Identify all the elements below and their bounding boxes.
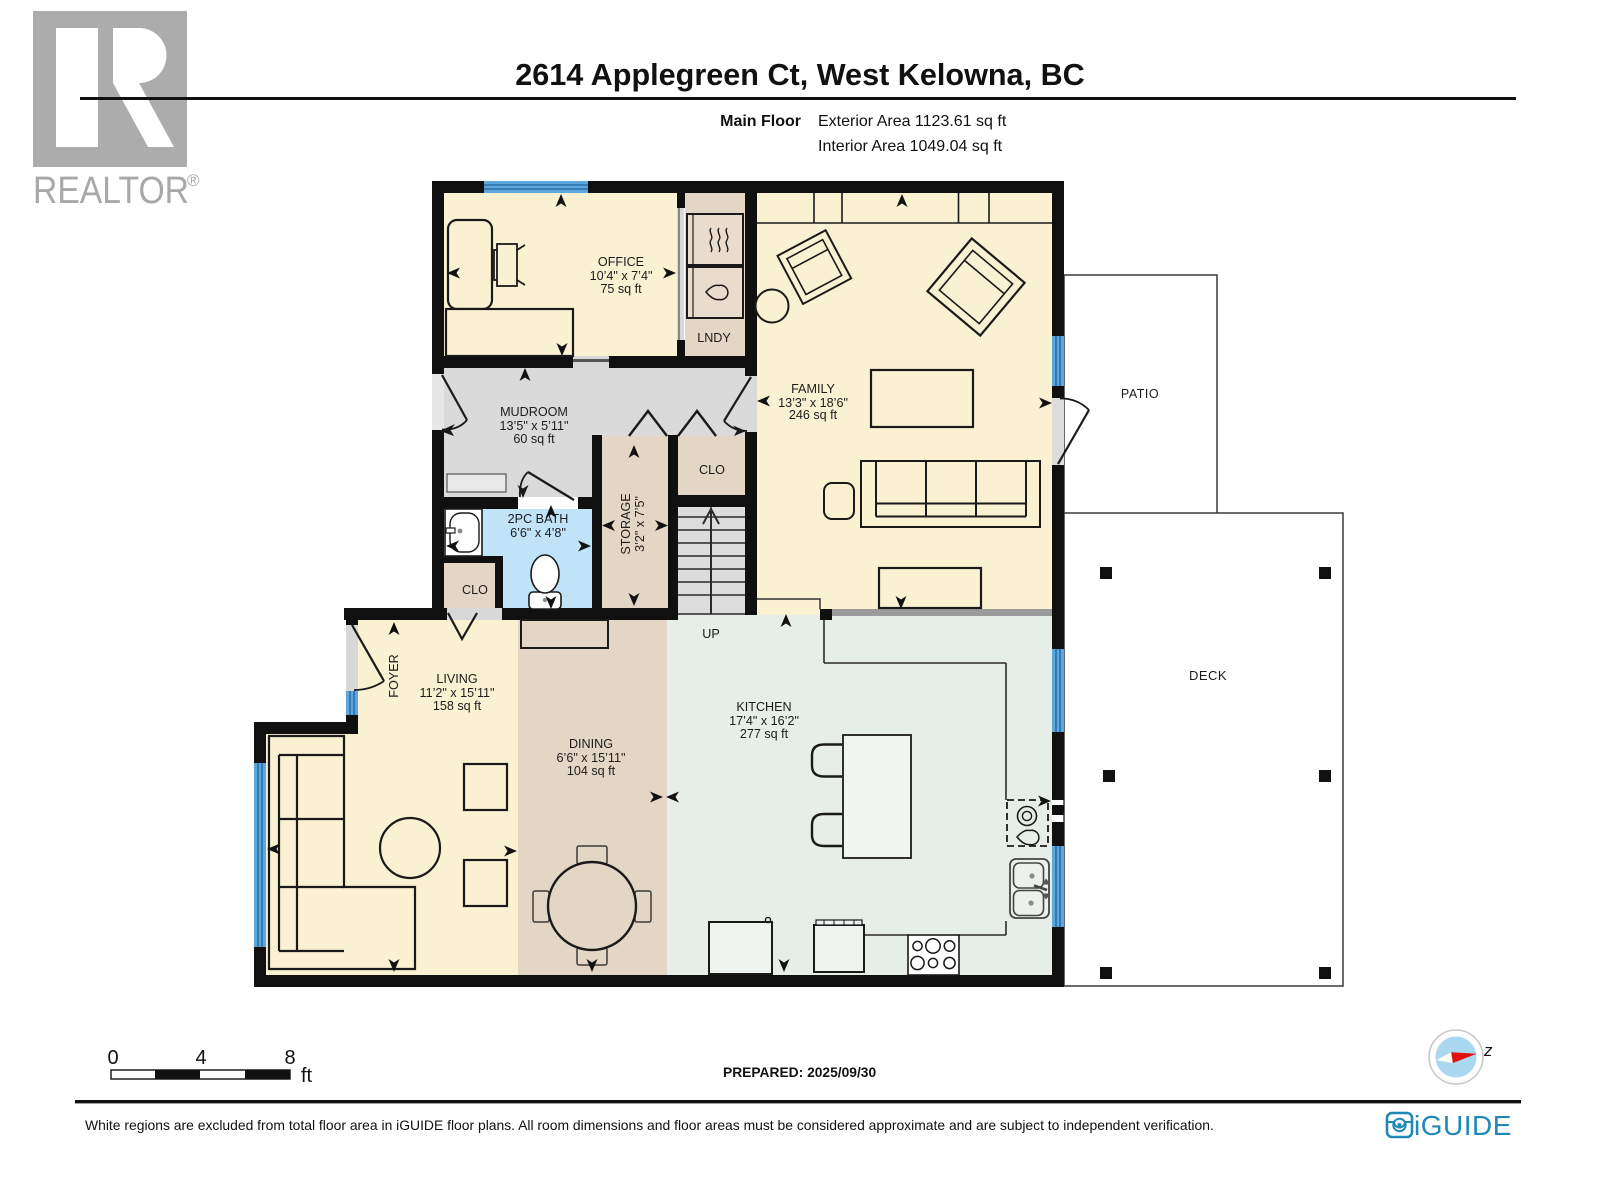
- svg-text:FAMILY: FAMILY: [791, 382, 835, 396]
- svg-text:0: 0: [107, 1047, 118, 1069]
- svg-text:KITCHEN: KITCHEN: [736, 700, 791, 714]
- svg-text:z: z: [1483, 1041, 1493, 1060]
- svg-text:6’6" x 15’11": 6’6" x 15’11": [557, 751, 626, 765]
- svg-text:LNDY: LNDY: [697, 331, 731, 345]
- svg-text:OFFICE: OFFICE: [598, 255, 644, 269]
- svg-text:8: 8: [284, 1047, 295, 1069]
- svg-text:LIVING: LIVING: [436, 672, 477, 686]
- svg-text:6’6" x 4’8": 6’6" x 4’8": [510, 526, 566, 540]
- svg-text:UP: UP: [702, 627, 720, 641]
- svg-text:13’5" x 5’11": 13’5" x 5’11": [500, 419, 569, 433]
- svg-text:iGUIDE: iGUIDE: [1414, 1110, 1512, 1141]
- svg-text:2PC BATH: 2PC BATH: [508, 512, 569, 526]
- svg-text:REALTOR: REALTOR: [33, 170, 189, 212]
- svg-text:CLO: CLO: [462, 583, 488, 597]
- svg-text:2614 Applegreen Ct, West Kelow: 2614 Applegreen Ct, West Kelowna, BC: [515, 58, 1085, 92]
- svg-text:CLO: CLO: [699, 463, 725, 477]
- svg-text:158 sq ft: 158 sq ft: [433, 699, 482, 713]
- svg-text:PATIO: PATIO: [1121, 387, 1159, 401]
- svg-text:STORAGE: STORAGE: [619, 493, 633, 554]
- svg-text:277 sq ft: 277 sq ft: [740, 727, 789, 741]
- svg-text:246 sq ft: 246 sq ft: [789, 408, 838, 422]
- svg-text:DECK: DECK: [1189, 668, 1227, 683]
- svg-text:11’2" x 15’11": 11’2" x 15’11": [420, 686, 495, 700]
- svg-text:PREPARED: 2025/09/30: PREPARED: 2025/09/30: [723, 1065, 876, 1080]
- svg-text:17’4" x 16’2": 17’4" x 16’2": [729, 714, 799, 728]
- svg-text:104 sq ft: 104 sq ft: [567, 764, 616, 778]
- svg-text:DINING: DINING: [569, 737, 613, 751]
- svg-text:®: ®: [187, 171, 200, 190]
- svg-text:FOYER: FOYER: [387, 654, 401, 697]
- svg-text:10’4" x 7’4": 10’4" x 7’4": [590, 269, 653, 283]
- svg-text:Main Floor: Main Floor: [720, 113, 801, 130]
- svg-text:60 sq ft: 60 sq ft: [513, 432, 555, 446]
- svg-text:White regions are excluded fro: White regions are excluded from total fl…: [85, 1117, 1214, 1133]
- svg-text:ft: ft: [301, 1065, 313, 1087]
- svg-text:75 sq ft: 75 sq ft: [600, 282, 642, 296]
- svg-text:Exterior Area 1123.61 sq ft: Exterior Area 1123.61 sq ft: [818, 113, 1007, 130]
- svg-text:4: 4: [195, 1047, 206, 1069]
- svg-text:Interior Area 1049.04 sq ft: Interior Area 1049.04 sq ft: [818, 138, 1003, 155]
- svg-text:3’2" x 7’5": 3’2" x 7’5": [633, 496, 647, 552]
- svg-text:MUDROOM: MUDROOM: [500, 405, 568, 419]
